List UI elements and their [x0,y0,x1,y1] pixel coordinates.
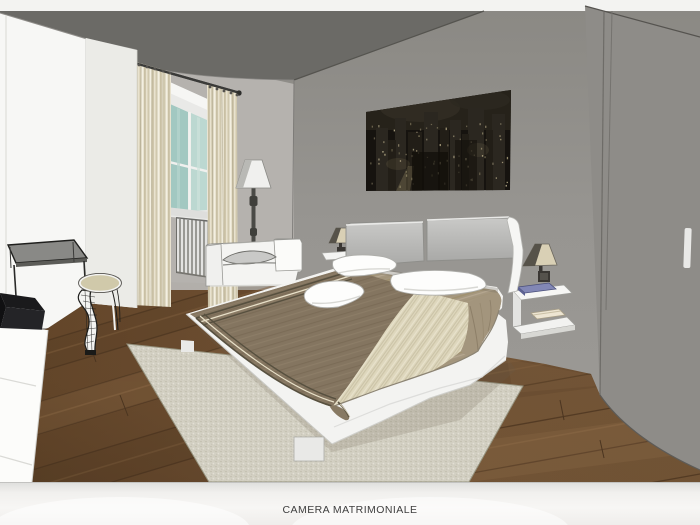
svg-text:CAMERA MATRIMONIALE: CAMERA MATRIMONIALE [283,504,418,516]
